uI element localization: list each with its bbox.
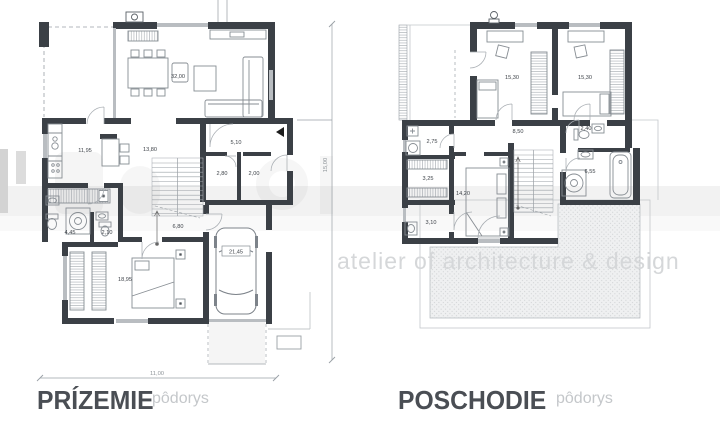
- room-label-bedroom-right: 15,30: [578, 75, 592, 81]
- room-label-bedroom-left: 15,30: [505, 75, 519, 81]
- room-label-bedroom: 18,95: [118, 277, 132, 283]
- room-label-garage: 21,45: [229, 250, 243, 256]
- upper-floor-stairs: [514, 150, 553, 216]
- upper-bath-fixtures: [562, 150, 631, 198]
- room-label-master-bedroom: 14,20: [456, 191, 470, 197]
- upper-floor-plan: 15,30 15,30 8,50 2,75 3,25 14,20 3,10 2,…: [399, 12, 658, 329]
- ground-floor-stairs: [152, 158, 203, 246]
- flue-lines: [218, 0, 227, 22]
- terrace-outline: [44, 27, 113, 117]
- ground-floor-title: PRÍZEMIE: [37, 385, 154, 416]
- room-label-bath: 4,45: [65, 230, 76, 236]
- floor-plan-sheet: 11,00 15,00 32,00 11,95 13,80 5,10 2,80 …: [0, 0, 720, 432]
- dim-label-width: 11,00: [150, 371, 164, 377]
- bedroom-right-furniture: [563, 31, 624, 116]
- room-label-upper-bath: 6,55: [585, 169, 596, 175]
- upper-floor-title: POSCHODIE: [398, 385, 546, 416]
- room-label-pantry: 2,80: [217, 171, 228, 177]
- upper-chimney: [489, 12, 499, 24]
- room-label-stairs: 6,80: [173, 224, 184, 230]
- upper-floor-subtitle: pôdorys: [556, 390, 613, 408]
- room-label-laundry: 2,75: [427, 139, 438, 145]
- laundry-fixtures: [406, 126, 420, 155]
- room-label-upper-hall: 8,50: [513, 129, 524, 135]
- chimney: [126, 12, 143, 22]
- ground-floor-subtitle: pôdorys: [152, 390, 209, 408]
- dim-label-height: 15,00: [323, 158, 329, 173]
- void-outline: [407, 25, 470, 120]
- room-label-hall: 13,80: [143, 147, 157, 153]
- watermark-tagline: atelier of architecture & design: [337, 248, 680, 275]
- garage-car: [214, 228, 258, 314]
- room-label-upper-wc: 2,40: [581, 126, 592, 132]
- entrance-arrow-marker: [276, 127, 284, 137]
- floor-plans-drawing: 11,00 15,00 32,00 11,95 13,80 5,10 2,80 …: [0, 0, 720, 432]
- driveway: [209, 322, 265, 364]
- room-label-entry: 5,10: [231, 140, 242, 146]
- room-label-kitchen: 11,95: [78, 148, 92, 154]
- master-bedroom-furniture: [466, 158, 509, 236]
- room-label-storage: 3,10: [426, 220, 437, 226]
- room-label-closet: 3,25: [423, 176, 434, 182]
- hedge: [399, 25, 407, 120]
- ground-floor-plan: 11,00 15,00 32,00 11,95 13,80 5,10 2,80 …: [37, 0, 335, 381]
- room-label-living: 32,00: [171, 74, 185, 80]
- living-room-furniture: [128, 30, 266, 117]
- room-label-wc2: 2,10: [102, 230, 113, 236]
- room-label-wc: 2,00: [249, 171, 260, 177]
